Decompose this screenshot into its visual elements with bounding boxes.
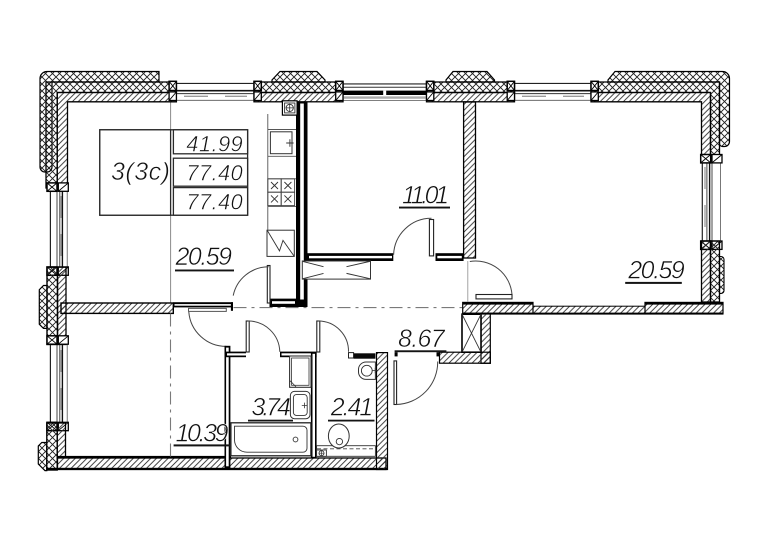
svg-text:3(3с): 3(3с) xyxy=(111,158,170,186)
svg-text:3.74: 3.74 xyxy=(251,393,291,421)
svg-text:41.99: 41.99 xyxy=(186,131,242,156)
svg-text:11.01: 11.01 xyxy=(402,182,449,210)
svg-text:10.39: 10.39 xyxy=(176,419,229,447)
svg-text:77.40: 77.40 xyxy=(186,161,243,186)
svg-text:20.59: 20.59 xyxy=(627,256,685,284)
svg-text:20.59: 20.59 xyxy=(175,243,233,271)
svg-text:2.41: 2.41 xyxy=(330,393,374,421)
svg-text:8.67: 8.67 xyxy=(398,325,446,353)
svg-text:77.40: 77.40 xyxy=(186,189,243,214)
